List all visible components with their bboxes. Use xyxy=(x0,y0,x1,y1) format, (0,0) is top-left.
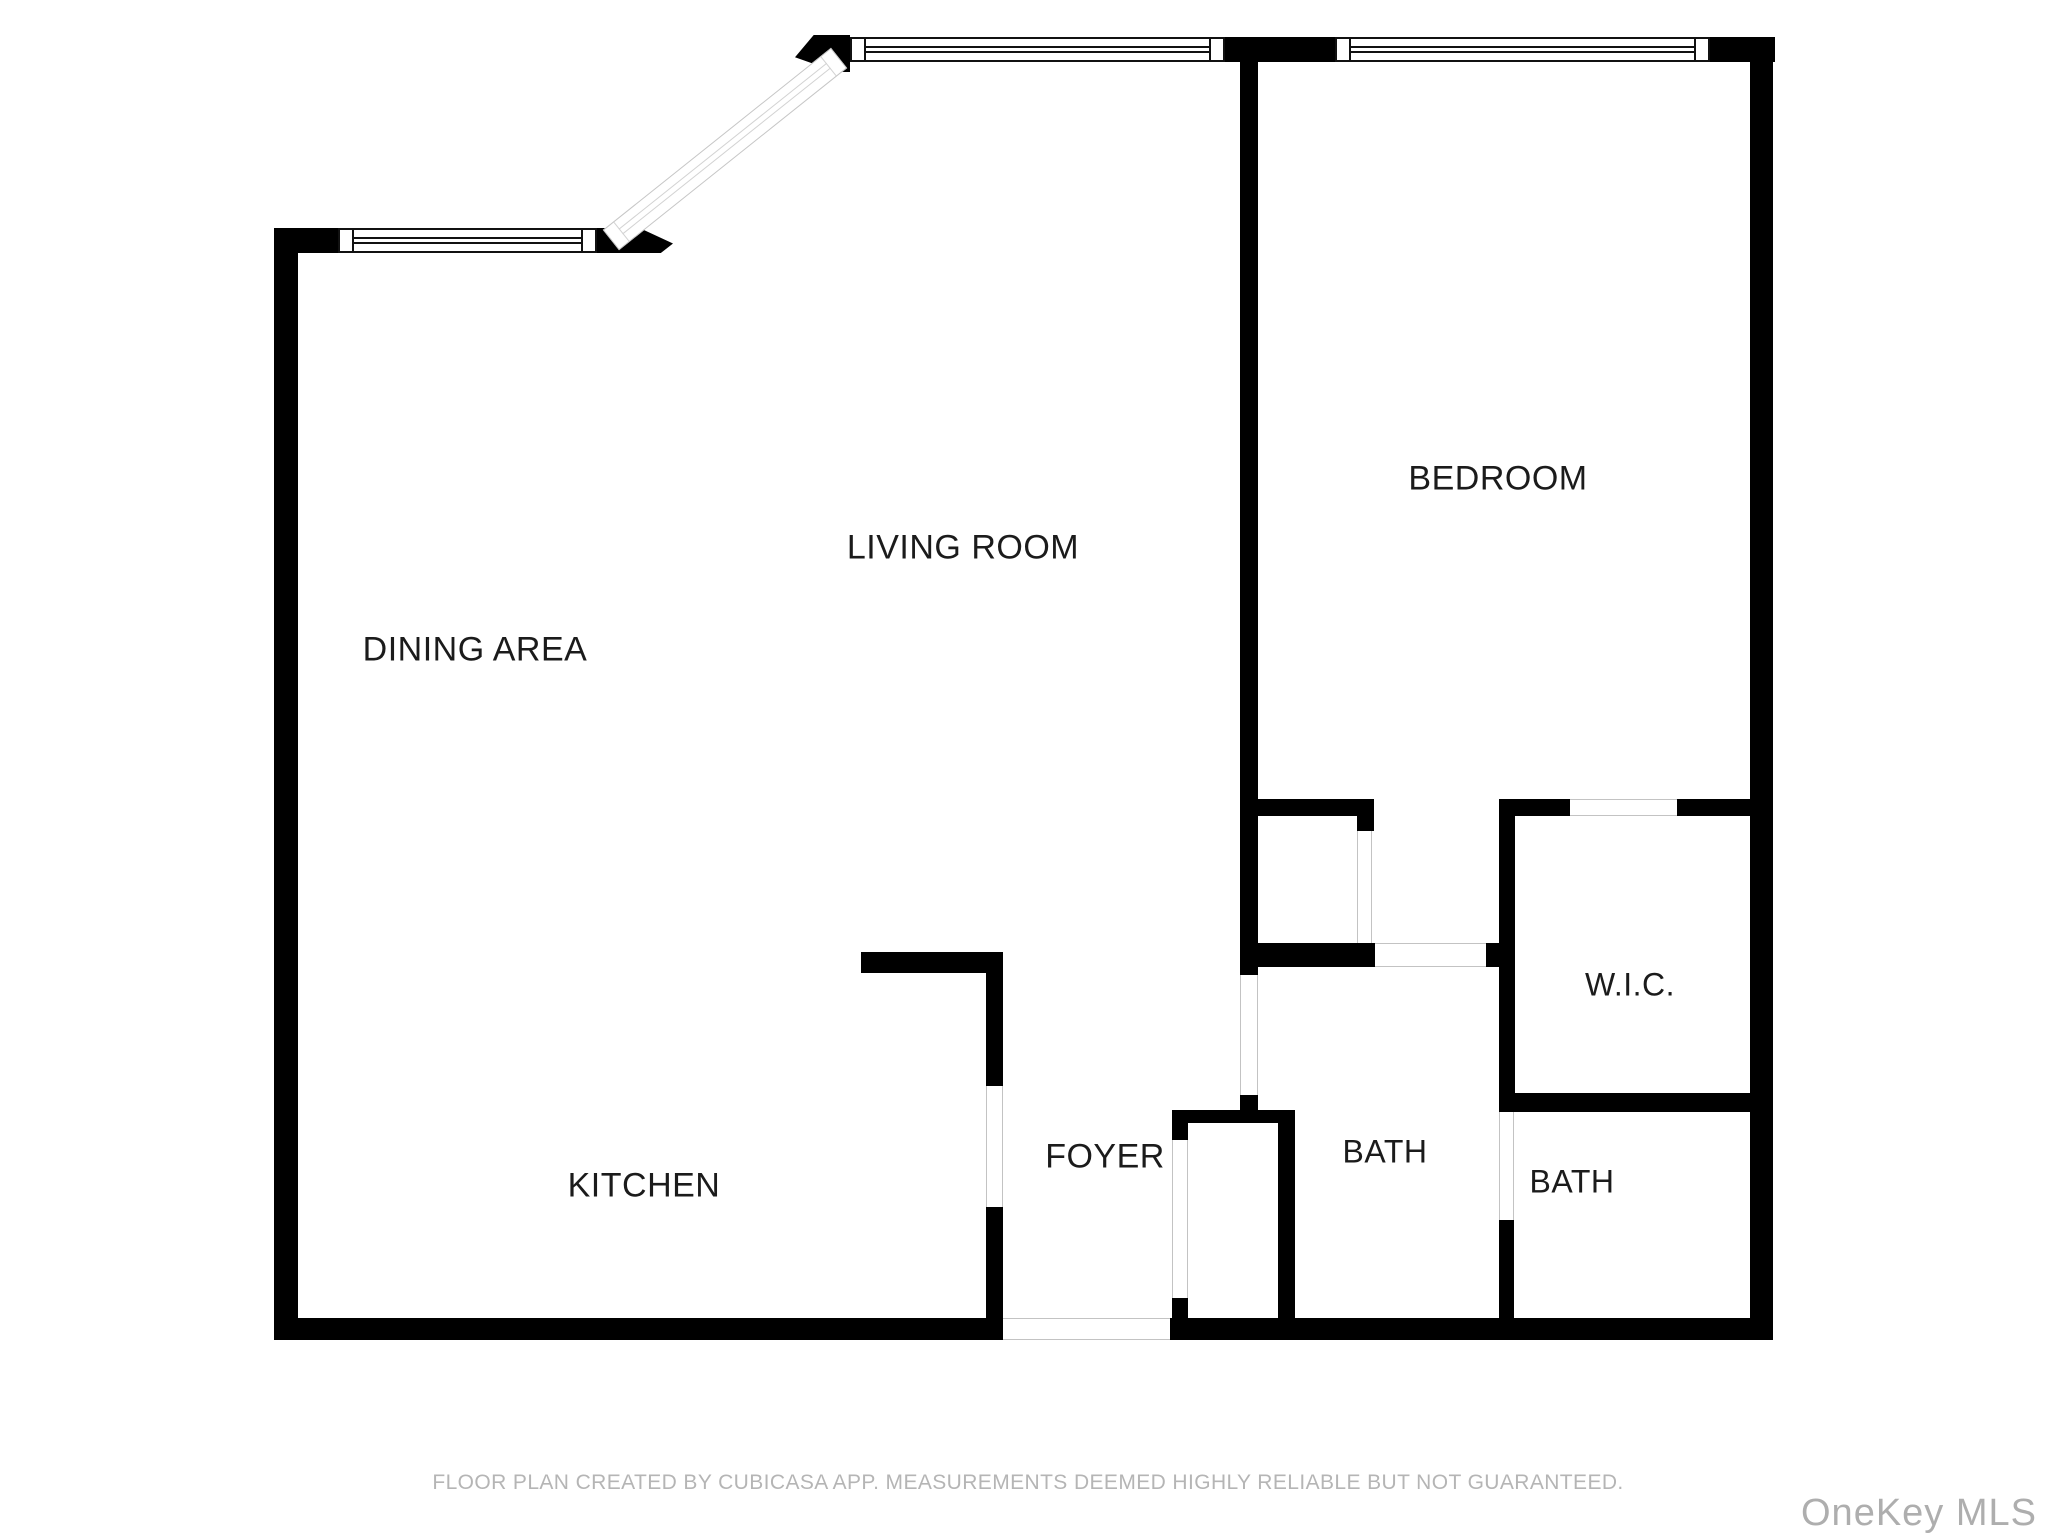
wall-wic-top-right-segment xyxy=(1677,799,1750,816)
window-glass-line xyxy=(864,46,1211,48)
wall-bedroom-closet-right-stub xyxy=(1357,816,1374,831)
door-opening-bedroom-closet xyxy=(1357,831,1372,943)
window-glass-line xyxy=(622,68,831,235)
wall-kitchen-horizontal xyxy=(861,952,1003,973)
door-opening-kitchen xyxy=(986,1086,1003,1207)
entry-door-opening xyxy=(1003,1318,1170,1340)
wall-foyer-closet-top xyxy=(1172,1110,1295,1123)
wall-exterior-right xyxy=(1750,37,1773,1340)
passage-opening-bedroom-to-bath xyxy=(1375,943,1486,967)
wall-wic-bottom xyxy=(1499,1093,1750,1112)
room-label-bedroom: BEDROOM xyxy=(1408,460,1587,499)
door-opening-hall-to-bath xyxy=(1240,975,1258,1095)
dining-area-window xyxy=(338,228,597,253)
window-glass-line xyxy=(352,237,583,239)
wall-top-mid-block xyxy=(1225,37,1335,62)
wall-exterior-bottom-left xyxy=(274,1318,1003,1340)
window-glass-line xyxy=(352,242,583,244)
door-opening-foyer-closet xyxy=(1172,1140,1188,1298)
window-frame-line xyxy=(1209,39,1211,60)
room-label-bath-middle: BATH xyxy=(1343,1134,1428,1171)
window-glass-line xyxy=(864,51,1211,53)
room-label-bath-right: BATH xyxy=(1530,1164,1615,1201)
wall-foyer-closet-left-stub-bottom xyxy=(1172,1298,1188,1318)
room-label-foyer: FOYER xyxy=(1045,1138,1165,1177)
wall-wic-left xyxy=(1499,799,1515,1112)
wall-top-right-corner-block xyxy=(1710,37,1775,62)
window-frame-line xyxy=(581,230,583,251)
floor-plan-disclaimer: FLOOR PLAN CREATED BY CUBICASA APP. MEAS… xyxy=(432,1471,1623,1495)
room-label-living-room: LIVING ROOM xyxy=(847,529,1079,568)
window-frame-line xyxy=(352,230,354,251)
wall-bath-divider-lower xyxy=(1499,1220,1514,1318)
floor-plan-canvas: DINING AREA LIVING ROOM BEDROOM KITCHEN … xyxy=(0,0,2048,1536)
door-opening-wic xyxy=(1570,799,1677,816)
window-frame-line xyxy=(1349,39,1351,60)
wall-foyer-closet-right xyxy=(1278,1123,1295,1318)
diagonal-bay-window xyxy=(603,48,847,250)
wall-living-bedroom-divider xyxy=(1240,62,1258,975)
window-glass-line xyxy=(1349,51,1696,53)
wall-exterior-bottom-right xyxy=(1170,1318,1773,1340)
door-opening-between-baths xyxy=(1499,1112,1514,1220)
wall-bedroom-bath-lower xyxy=(1258,943,1375,967)
wall-bath-nub-at-wic xyxy=(1486,943,1499,967)
wall-foyer-closet-left-stub-top xyxy=(1172,1110,1188,1140)
wall-kitchen-vertical-upper xyxy=(986,973,1003,1086)
wall-dining-top-corner-block xyxy=(274,228,338,253)
window-frame-line xyxy=(864,39,866,60)
onekey-mls-watermark: OneKey MLS xyxy=(1801,1492,2037,1535)
window-glass-line xyxy=(619,63,828,230)
wall-exterior-left xyxy=(274,228,298,1340)
wall-bedroom-closet-top xyxy=(1258,799,1374,816)
room-label-dining-area: DINING AREA xyxy=(363,631,588,670)
wall-wic-top-left-segment xyxy=(1499,799,1570,816)
living-room-window xyxy=(850,37,1225,62)
room-label-kitchen: KITCHEN xyxy=(568,1167,721,1206)
window-frame-line xyxy=(1694,39,1696,60)
room-label-wic: W.I.C. xyxy=(1585,967,1675,1004)
window-glass-line xyxy=(1349,46,1696,48)
wall-kitchen-vertical-lower xyxy=(986,1207,1003,1318)
bedroom-window xyxy=(1335,37,1710,62)
